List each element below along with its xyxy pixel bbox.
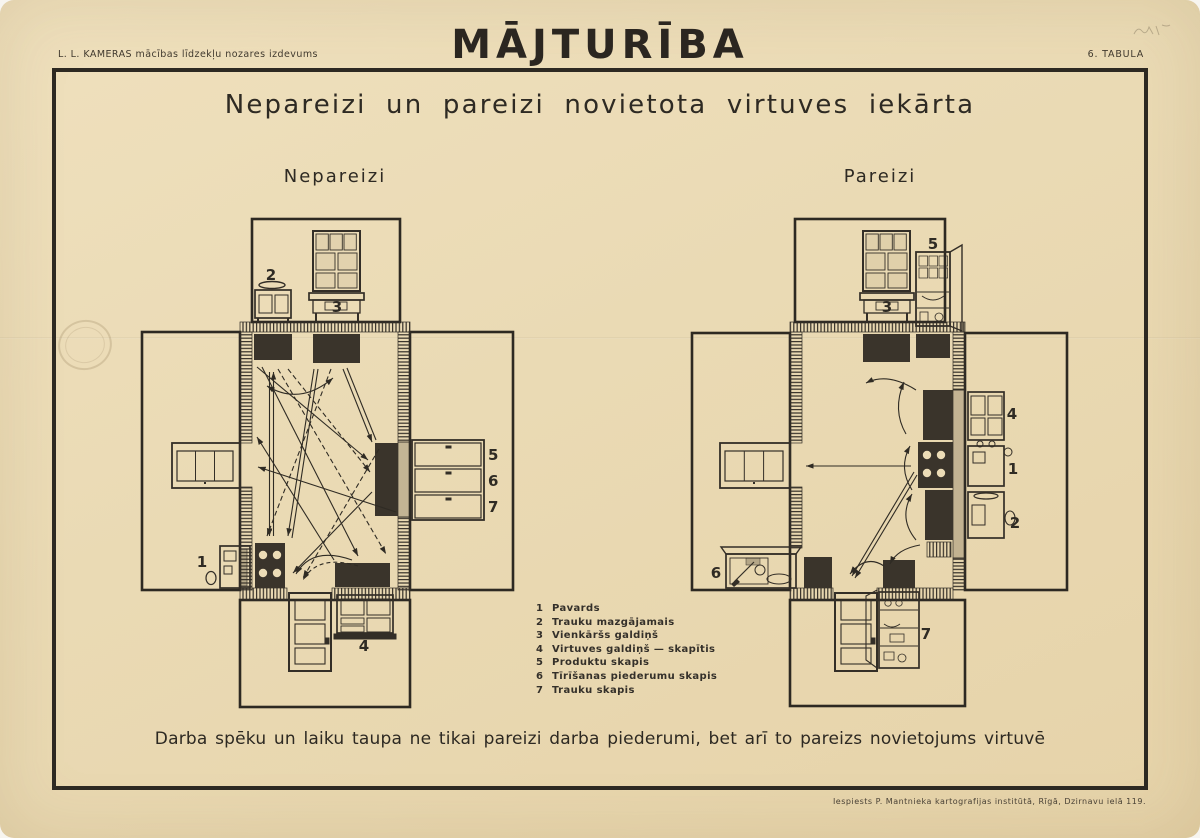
- legend-num: 4: [536, 644, 545, 655]
- legend-num: 3: [536, 630, 545, 641]
- legend-item: 1 Pavards: [536, 603, 717, 614]
- legend-item: 5 Produktu skapis: [536, 657, 717, 668]
- pareizi-floorplan-diagram: 3 5: [660, 212, 1080, 712]
- counter-grate: [927, 542, 951, 557]
- legend-label: Tīrīšanas piederumu skapis: [552, 671, 717, 682]
- printer-imprint: Iespiests P. Mantnieka kartografijas ins…: [833, 797, 1146, 806]
- window-elevation-left: [720, 443, 790, 488]
- item-number-2: 2: [1010, 514, 1020, 532]
- item-number-6: 6: [488, 472, 498, 490]
- item-number-1: 1: [197, 553, 207, 571]
- legend-num: 5: [536, 657, 545, 668]
- pantry-cabinet-elevation: [916, 245, 962, 331]
- legend-item: 2 Trauku mazgājamais: [536, 617, 717, 628]
- item-number-6: 6: [711, 564, 721, 582]
- movement-paths-efficient: [806, 379, 920, 578]
- door-elevation: [835, 593, 877, 671]
- legend-label: Pavards: [552, 603, 600, 614]
- window-elevation-left: [172, 443, 240, 488]
- window-elevation-top: [863, 231, 910, 291]
- item-number-4: 4: [1007, 405, 1017, 423]
- item-number-5: 5: [488, 446, 498, 464]
- window-elevation-top: [313, 231, 360, 291]
- subject-title: Nepareizi un pareizi novietota virtuves …: [0, 90, 1200, 120]
- bottom-caption: Darba spēku un laiku taupa ne tikai pare…: [0, 729, 1200, 749]
- item-number-2: 2: [266, 266, 276, 284]
- legend-num: 2: [536, 617, 545, 628]
- nepareizi-floorplan-diagram: 2 3: [130, 212, 530, 712]
- table-number: 6. TABULA: [1088, 49, 1144, 60]
- stove-elevation: [968, 441, 1012, 486]
- dish-cabinet-elevation: [866, 590, 919, 668]
- legend-item: 6 Tīrīšanas piederumu skapis: [536, 671, 717, 682]
- washstand-elevation: [968, 492, 1015, 538]
- stove-elevation: [206, 546, 250, 588]
- furniture-footprints: [254, 334, 398, 588]
- label-pareizi: Pareizi: [690, 166, 1070, 187]
- item-number-4: 4: [359, 637, 369, 655]
- kitchen-cabinet-elevation: [334, 595, 396, 639]
- kitchen-cabinet-elevation: [968, 392, 1004, 440]
- legend-label: Trauku skapis: [552, 685, 635, 696]
- item-number-5: 5: [928, 235, 938, 253]
- legend-label: Vienkāršs galdiņš: [552, 630, 658, 641]
- item-number-1: 1: [1008, 460, 1018, 478]
- legend: 1 Pavards 2 Trauku mazgājamais 3 Vienkār…: [536, 603, 717, 698]
- legend-label: Trauku mazgājamais: [552, 617, 675, 628]
- legend-label: Produktu skapis: [552, 657, 649, 668]
- item-number-3: 3: [332, 298, 342, 316]
- item-number-7: 7: [488, 498, 498, 516]
- legend-num: 7: [536, 685, 545, 696]
- legend-item: 3 Vienkāršs galdiņš: [536, 630, 717, 641]
- legend-num: 6: [536, 671, 545, 682]
- cabinets-567-elevation: [412, 440, 484, 520]
- poster-page: L. L. KAMERAS mācības līdzekļu nozares i…: [0, 0, 1200, 838]
- legend-label: Virtuves galdiņš — skapītis: [552, 644, 715, 655]
- poster-title: MĀJTURĪBA: [0, 22, 1200, 68]
- legend-item: 4 Virtuves galdiņš — skapītis: [536, 644, 717, 655]
- item-number-7: 7: [921, 625, 931, 643]
- item-number-3: 3: [882, 298, 892, 316]
- label-nepareizi: Nepareizi: [140, 166, 530, 187]
- legend-num: 1: [536, 603, 545, 614]
- legend-item: 7 Trauku skapis: [536, 685, 717, 696]
- washstand-elevation: [255, 282, 291, 323]
- door-elevation: [289, 593, 331, 671]
